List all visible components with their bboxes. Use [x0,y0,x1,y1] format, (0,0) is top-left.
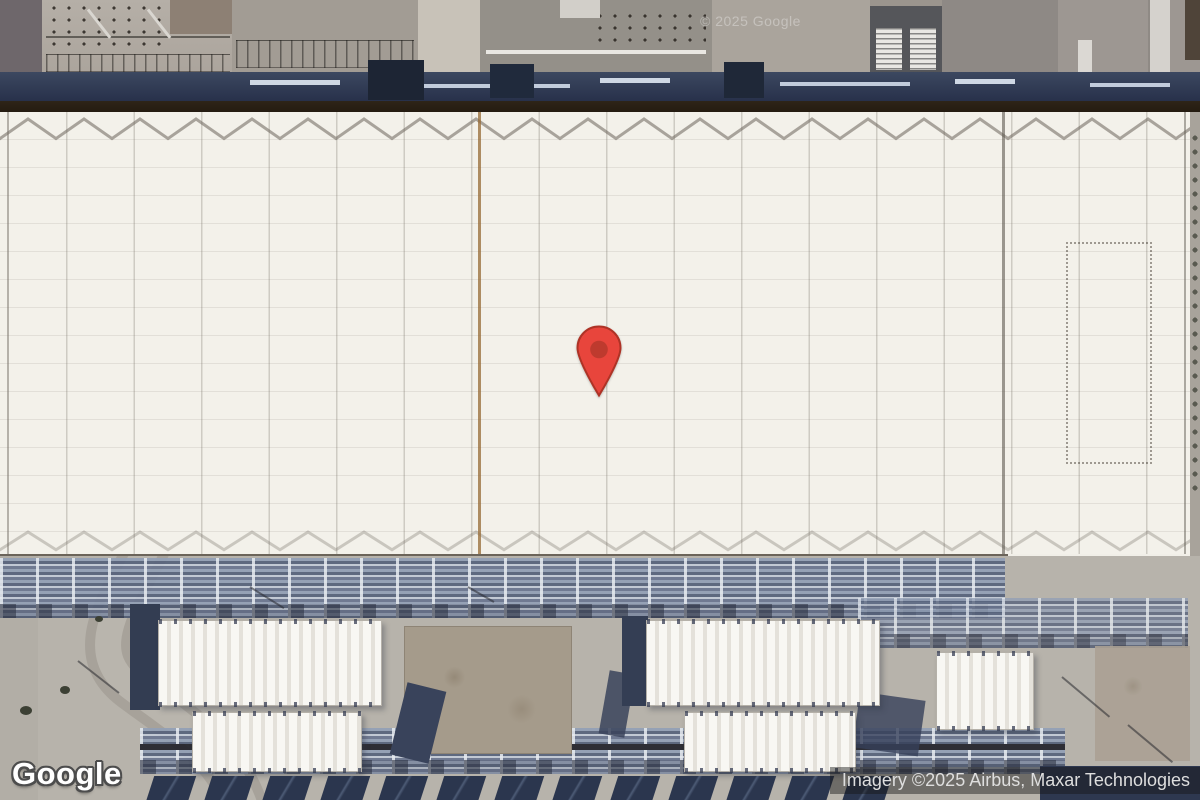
dark-panel [552,776,602,800]
dark-panel [668,776,718,800]
equipment-building [684,712,856,772]
dark-panel [726,776,776,800]
dark-panel [146,776,196,800]
roof-truss-pattern [0,528,1200,554]
roof-edge-seam [1184,112,1186,554]
imagery-attribution: Imagery ©2025 Airbus, Maxar Technologies [830,767,1200,794]
shrub [95,616,103,622]
dark-panel [378,776,428,800]
google-copyright-watermark: © 2025 Google [700,13,801,29]
roof-dotted-markings [1066,242,1152,464]
dark-panel [320,776,370,800]
roof-expansion-joint [478,112,481,554]
catwalk-railing [46,36,230,38]
dark-panel [494,776,544,800]
pipe-rack [858,598,1188,648]
dark-panel [436,776,486,800]
dark-structure [622,616,648,706]
dark-panel-row [146,776,892,800]
shrub [20,706,32,715]
equipment-unit [876,28,902,70]
roof-ac-unit [490,64,534,98]
roof-edge-seam [7,112,9,554]
catwalk-railing [46,54,230,72]
shrub-row [1190,132,1200,492]
roof-truss-pattern [0,114,1200,144]
pipe-highlight [780,82,910,86]
dark-panel [610,776,660,800]
map-pin-icon[interactable] [575,324,623,399]
dark-panel [262,776,312,800]
equipment-building [646,620,880,706]
upper-building-roof [0,0,1200,112]
shrub [60,686,70,694]
roof-section-seam [1002,112,1005,554]
equipment-yard [0,556,1200,800]
google-logo[interactable]: Google [12,756,122,792]
equipment-building [192,712,362,772]
roof-ac-unit [368,60,424,100]
roof-section [942,0,1058,76]
catwalk-highlight [486,50,706,54]
roof-ac-unit [724,62,764,98]
roof-vents [596,12,706,50]
imagery-attribution-text: Imagery ©2025 Airbus, Maxar Technologies [842,770,1190,790]
roof-unit [1078,40,1092,76]
pipe-highlight [1090,83,1170,87]
equipment-building [158,620,382,706]
equipment-unit [910,28,936,70]
dirt-patch [1095,646,1190,761]
satellite-map-canvas[interactable]: © 2025 Google Google Imagery ©2025 Airbu… [0,0,1200,800]
roof-patch [170,0,232,34]
roof-unit [1148,0,1170,76]
roof-dark-edge [1185,0,1200,60]
roof-unit [560,0,600,18]
dark-structure [130,604,160,710]
dark-panel [204,776,254,800]
pipe-highlight [955,79,1015,84]
dark-panel [784,776,834,800]
equipment-building [936,652,1034,730]
pipe-highlight [600,78,670,83]
building-shadow-band [0,72,1200,102]
pipe-highlight [250,80,340,85]
roof-vents [50,4,170,46]
